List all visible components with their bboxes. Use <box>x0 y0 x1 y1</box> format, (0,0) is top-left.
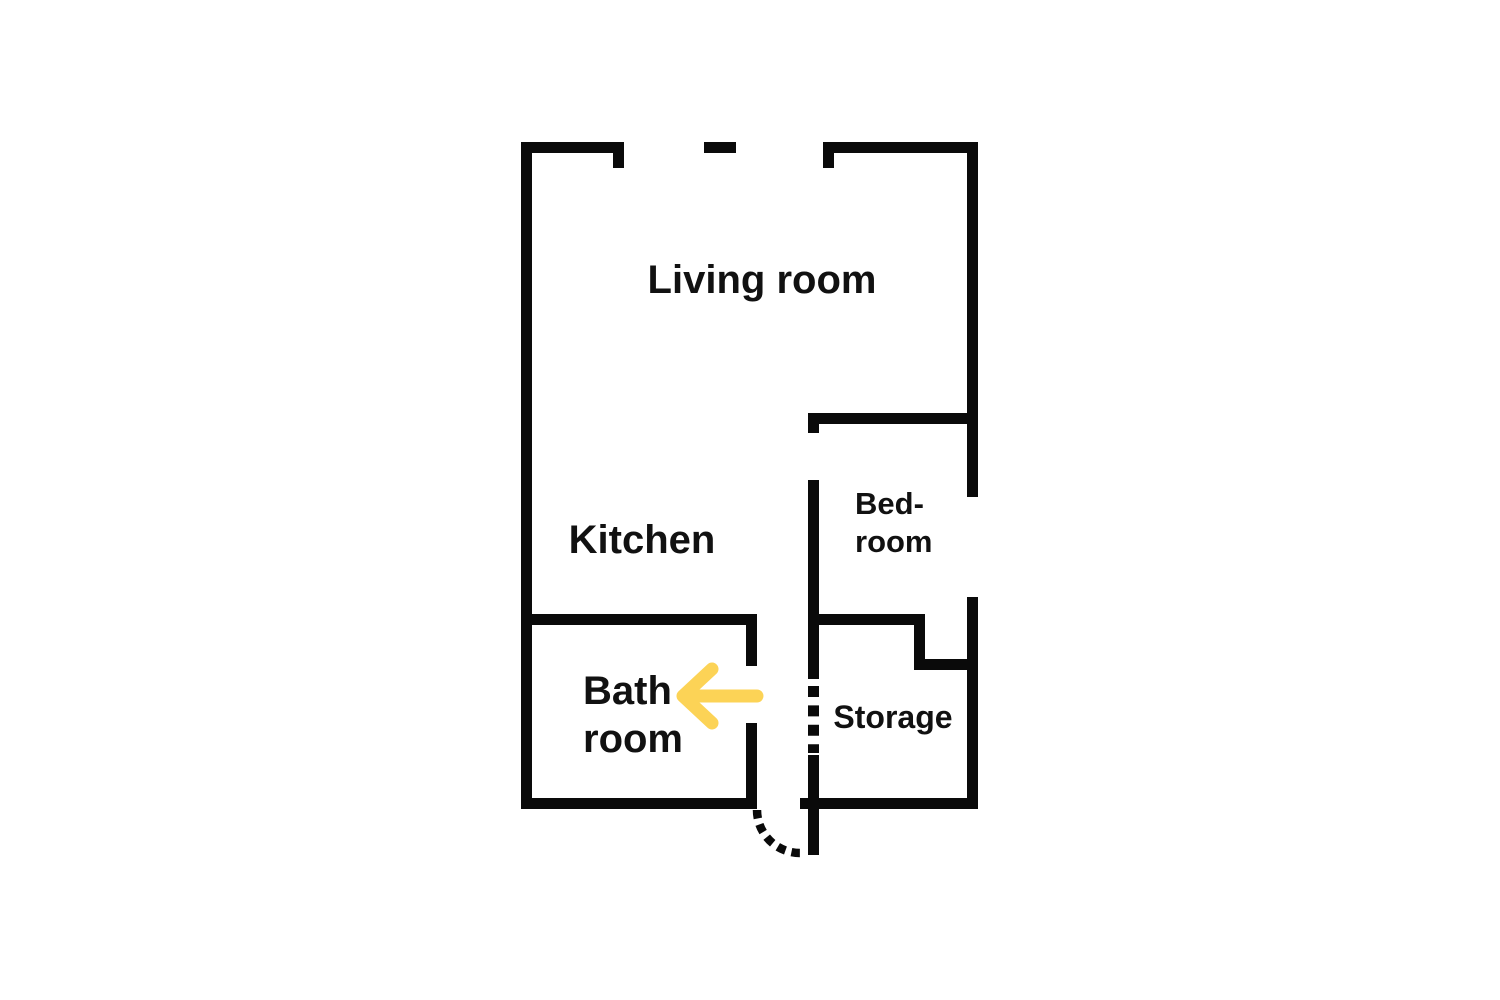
bathroom-door-jamb <box>746 614 757 666</box>
bathroom-wall-top <box>521 614 757 625</box>
right-wall-lower <box>967 597 978 809</box>
room-label-bedroom-line2: room <box>855 523 933 561</box>
room-label-bedroom: Bed- room <box>855 485 933 561</box>
floor-plan-svg <box>0 0 1500 1000</box>
bottom-wall-left <box>521 798 757 809</box>
room-label-kitchen: Kitchen <box>569 520 716 560</box>
left-arrow-icon <box>683 669 757 723</box>
entry-door-swing-arc <box>757 810 800 853</box>
bathroom-wall-right <box>746 723 757 809</box>
room-label-living-room: Living room <box>648 260 877 300</box>
top-opening-mullion <box>704 142 736 153</box>
floor-plan-canvas: Living room Kitchen Bed- room Bath room … <box>0 0 1500 1000</box>
top-wall-right <box>823 142 978 153</box>
bedroom-wall <box>808 413 978 424</box>
room-label-bathroom-line1: Bath <box>583 667 683 715</box>
right-wall-upper <box>967 142 978 497</box>
room-label-storage: Storage <box>833 701 952 733</box>
room-label-bathroom-line2: room <box>583 715 683 763</box>
top-wall-left-return <box>613 142 624 168</box>
top-wall-left <box>521 142 624 153</box>
left-wall <box>521 142 532 809</box>
room-label-bathroom: Bath room <box>583 667 683 763</box>
bedroom-wall-return <box>808 413 819 433</box>
storage-wall-top <box>808 614 925 625</box>
storage-step-horizontal <box>914 659 978 670</box>
bottom-wall-right <box>800 798 978 809</box>
room-label-bedroom-line1: Bed- <box>855 485 933 523</box>
top-wall-right-return <box>823 142 834 168</box>
hallway-wall-upper <box>808 480 819 679</box>
